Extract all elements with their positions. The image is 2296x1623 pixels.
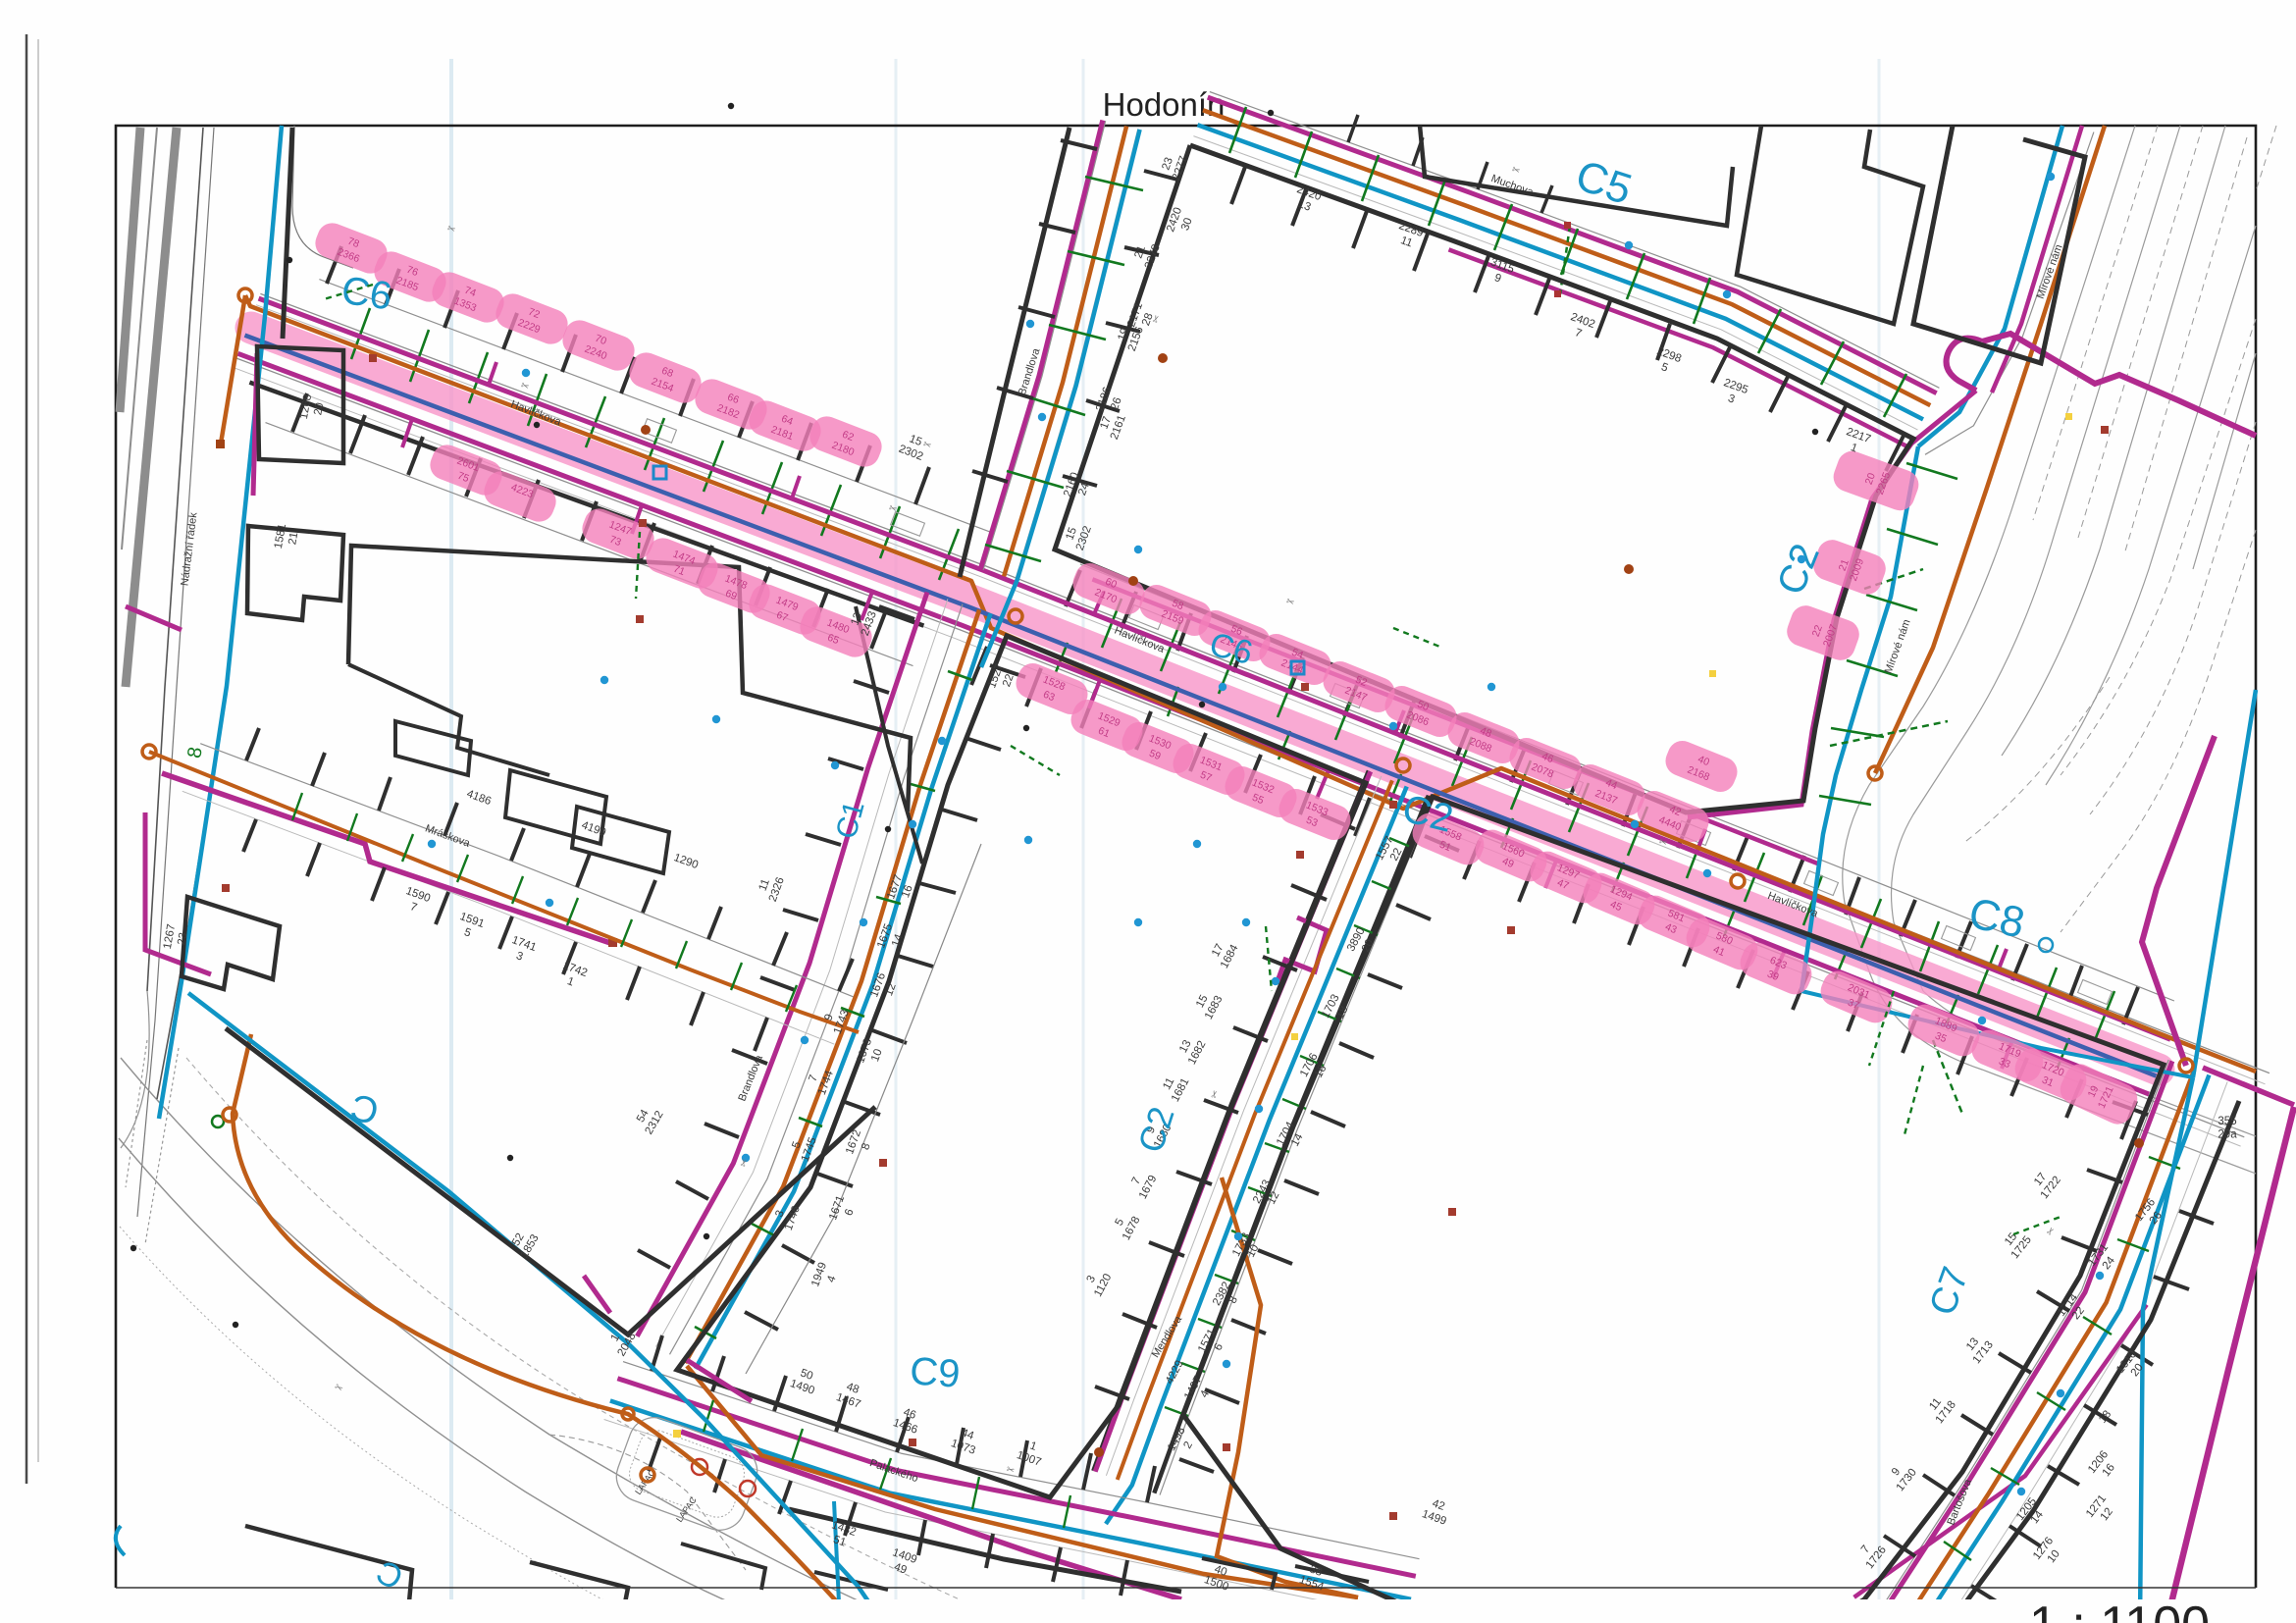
svg-text:1 : 1100: 1 : 1100 (2029, 1597, 2210, 1623)
svg-text:355: 355 (2218, 1116, 2236, 1127)
svg-text:C9: C9 (909, 1349, 962, 1395)
svg-text:29a: 29a (2218, 1129, 2237, 1141)
svg-text:20: 20 (312, 401, 326, 416)
svg-text:Hodonín: Hodonín (1103, 86, 1226, 123)
svg-text:23: 23 (176, 931, 189, 946)
svg-text:C6: C6 (339, 269, 394, 319)
svg-text:21: 21 (287, 531, 300, 546)
